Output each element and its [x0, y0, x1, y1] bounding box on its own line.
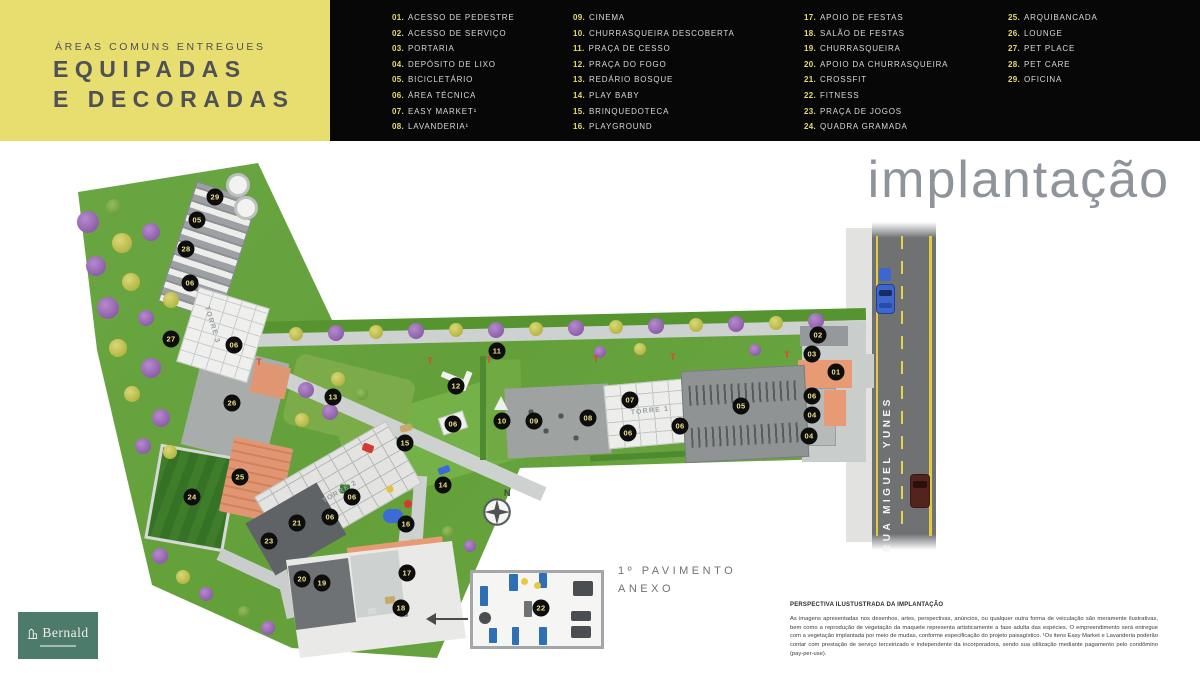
legend-item: 03.PORTARIA — [392, 44, 514, 53]
tree — [112, 233, 132, 253]
legend-item-number: 02. — [392, 29, 404, 38]
map-marker-19: 19 — [314, 575, 331, 592]
map-marker-14: 14 — [435, 477, 452, 494]
gym-equipment — [534, 582, 541, 589]
legend-item-label: OFICINA — [1024, 75, 1062, 84]
tree — [298, 382, 314, 398]
map-marker-03: 03 — [804, 346, 821, 363]
water-tank — [234, 196, 258, 220]
map-detail-item — [404, 500, 412, 508]
map-marker-04: 04 — [804, 407, 821, 424]
gym-equipment — [571, 611, 591, 621]
legend-item-label: PLAY BABY — [589, 91, 640, 100]
red-car — [910, 474, 930, 508]
map-marker-15: 15 — [397, 435, 414, 452]
legend-item: 04.DEPÓSITO DE LIXO — [392, 60, 514, 69]
vehicle-icon — [879, 268, 891, 281]
road-line — [876, 236, 878, 536]
north-label: N — [504, 488, 511, 498]
bernald-logo-tagline — [40, 645, 76, 647]
legend-item-label: CHURRASQUEIRA DESCOBERTA — [589, 29, 735, 38]
legend-item-number: 23. — [804, 107, 816, 116]
map-marker-04: 04 — [801, 428, 818, 445]
legend-item-label: ACESSO DE PEDESTRE — [408, 13, 514, 22]
tree — [199, 587, 213, 601]
header-highlight-box: ÁREAS COMUNS ENTREGUES EQUIPADAS E DECOR… — [0, 0, 330, 141]
header-kicker: ÁREAS COMUNS ENTREGUES — [55, 41, 266, 53]
map-marker-02: 02 — [810, 327, 827, 344]
legend-item-number: 07. — [392, 107, 404, 116]
legend-item-label: CROSSFIT — [820, 75, 867, 84]
entry-crossing — [864, 354, 874, 388]
legend-item-number: 14. — [573, 91, 585, 100]
map-marker-08: 08 — [580, 410, 597, 427]
map-marker-22: 22 — [533, 600, 550, 617]
tree — [689, 318, 703, 332]
legend-item: 01.ACESSO DE PEDESTRE — [392, 13, 514, 22]
disclaimer-body: As imagens apresentadas nos desenhos, ar… — [790, 615, 1158, 658]
tree — [322, 404, 338, 420]
map-marker-06: 06 — [445, 416, 462, 433]
gym-equipment — [512, 627, 519, 645]
legend-item: 13.REDÁRIO BOSQUE — [573, 75, 735, 84]
map-marker-25: 25 — [232, 469, 249, 486]
header-title-line1: EQUIPADAS — [53, 56, 247, 83]
legend-item-number: 24. — [804, 122, 816, 131]
tree — [749, 344, 761, 356]
tree — [141, 358, 161, 378]
tree — [408, 323, 424, 339]
tree — [109, 339, 127, 357]
legend-item: 22.FITNESS — [804, 91, 948, 100]
map-marker-06: 06 — [344, 489, 361, 506]
map-detail-item — [559, 414, 564, 419]
hydrant-mark: T — [427, 356, 433, 366]
legend-column: 25.ARQUIBANCADA26.LOUNGE27.PET PLACE28.P… — [1008, 13, 1098, 91]
bike-racks-row — [691, 422, 802, 448]
legend-item: 19.CHURRASQUEIRA — [804, 44, 948, 53]
legend-item-label: ACESSO DE SERVIÇO — [408, 29, 506, 38]
legend-item-label: CHURRASQUEIRA — [820, 44, 901, 53]
map-marker-24: 24 — [184, 489, 201, 506]
map-detail-item — [544, 429, 549, 434]
tree — [152, 548, 168, 564]
legend-item-number: 06. — [392, 91, 404, 100]
tree — [488, 322, 504, 338]
header-title-line2: E DECORADAS — [53, 86, 294, 113]
legend-item-label: SALÃO DE FESTAS — [820, 29, 905, 38]
legend-item: 17.APOIO DE FESTAS — [804, 13, 948, 22]
tree — [728, 316, 744, 332]
tree — [331, 372, 345, 386]
gym-equipment — [480, 586, 488, 606]
legend-item: 11.PRAÇA DE CESSO — [573, 44, 735, 53]
map-marker-09: 09 — [526, 413, 543, 430]
tree — [609, 320, 623, 334]
legend-item-number: 03. — [392, 44, 404, 53]
map-detail-item — [368, 608, 377, 615]
tree — [163, 445, 177, 459]
map-marker-05: 05 — [733, 398, 750, 415]
tree — [356, 388, 368, 400]
tree — [449, 323, 463, 337]
legend-item: 23.PRAÇA DE JOGOS — [804, 107, 948, 116]
map-marker-05: 05 — [189, 212, 206, 229]
hydrant-mark: T — [593, 354, 599, 364]
legend-item-label: PLAYGROUND — [589, 122, 652, 131]
garden-sculpture — [494, 396, 508, 410]
legend-item-number: 09. — [573, 13, 585, 22]
map-marker-20: 20 — [294, 571, 311, 588]
annex-label-line2: ANEXO — [618, 580, 736, 598]
legend-item: 08.LAVANDERIA¹ — [392, 122, 514, 131]
gym-equipment — [479, 612, 491, 624]
map-marker-01: 01 — [828, 364, 845, 381]
hydrant-mark: T — [784, 350, 790, 360]
tree — [295, 413, 309, 427]
legend-item: 05.BICICLETÁRIO — [392, 75, 514, 84]
map-marker-27: 27 — [163, 331, 180, 348]
legend-item-label: PET PLACE — [1024, 44, 1075, 53]
legend-item-label: LOUNGE — [1024, 29, 1063, 38]
legend: 01.ACESSO DE PEDESTRE02.ACESSO DE SERVIÇ… — [330, 0, 1200, 141]
map-marker-06: 06 — [322, 509, 339, 526]
tree — [261, 621, 275, 635]
legend-item-number: 20. — [804, 60, 816, 69]
blue-car — [876, 284, 895, 314]
legend-panel: 01.ACESSO DE PEDESTRE02.ACESSO DE SERVIÇ… — [330, 0, 1200, 141]
disclaimer-title: PERSPECTIVA ILUSTUSTRADA DA IMPLANTAÇÃO — [790, 602, 1158, 608]
map-marker-21: 21 — [289, 515, 306, 532]
legend-item: 02.ACESSO DE SERVIÇO — [392, 29, 514, 38]
legend-item: 18.SALÃO DE FESTAS — [804, 29, 948, 38]
annex-label-line1: 1º PAVIMENTO — [618, 562, 736, 580]
legend-item: 28.PET CARE — [1008, 60, 1098, 69]
map-marker-07: 07 — [622, 392, 639, 409]
map-marker-26: 26 — [224, 395, 241, 412]
tree — [769, 316, 783, 330]
legend-item-label: PRAÇA DO FOGO — [589, 60, 667, 69]
legend-item-number: 08. — [392, 122, 404, 131]
legend-item-label: BICICLETÁRIO — [408, 75, 473, 84]
tree — [152, 409, 170, 427]
legend-item: 09.CINEMA — [573, 13, 735, 22]
page: ÁREAS COMUNS ENTREGUES EQUIPADAS E DECOR… — [0, 0, 1200, 675]
legend-item-number: 25. — [1008, 13, 1020, 22]
legend-item-label: EASY MARKET¹ — [408, 107, 477, 116]
map-detail-item — [387, 486, 394, 493]
tree — [124, 386, 140, 402]
tree — [369, 325, 383, 339]
compass-rose — [480, 495, 514, 529]
legend-item-number: 15. — [573, 107, 585, 116]
tree — [529, 322, 543, 336]
legend-item-number: 18. — [804, 29, 816, 38]
gym-equipment — [521, 578, 528, 585]
map-marker-28: 28 — [178, 241, 195, 258]
legend-item-label: PRAÇA DE JOGOS — [820, 107, 902, 116]
legend-item: 20.APOIO DA CHURRASQUEIRA — [804, 60, 948, 69]
legend-column: 09.CINEMA10.CHURRASQUEIRA DESCOBERTA11.P… — [573, 13, 735, 138]
hydrant-mark: T — [670, 352, 676, 362]
legend-item-label: ÁREA TÉCNICA — [408, 91, 476, 100]
legend-item-label: PORTARIA — [408, 44, 455, 53]
legend-item-label: APOIO DE FESTAS — [820, 13, 903, 22]
tree — [442, 526, 454, 538]
map-marker-06: 06 — [182, 275, 199, 292]
bike-storage-building — [681, 365, 810, 463]
road-center-line — [901, 236, 903, 536]
street: RUA MIGUEL YUNES — [872, 222, 936, 550]
tree — [142, 223, 160, 241]
bernald-logo-icon — [27, 626, 38, 640]
legend-item-number: 12. — [573, 60, 585, 69]
tree — [289, 327, 303, 341]
map-marker-17: 17 — [399, 565, 416, 582]
legend-item-label: LAVANDERIA¹ — [408, 122, 469, 131]
tree — [106, 199, 122, 215]
tree — [122, 273, 140, 291]
legend-item-number: 27. — [1008, 44, 1020, 53]
legend-item-label: QUADRA GRAMADA — [820, 122, 908, 131]
tree — [163, 292, 179, 308]
street-name-label: RUA MIGUEL YUNES — [882, 302, 893, 552]
legend-item: 27.PET PLACE — [1008, 44, 1098, 53]
legend-item: 24.QUADRA GRAMADA — [804, 122, 948, 131]
annex-label: 1º PAVIMENTO ANEXO — [618, 562, 736, 598]
legend-item-label: ARQUIBANCADA — [1024, 13, 1098, 22]
tree — [77, 211, 99, 233]
disclaimer: PERSPECTIVA ILUSTUSTRADA DA IMPLANTAÇÃO … — [790, 602, 1158, 658]
legend-item: 06.ÁREA TÉCNICA — [392, 91, 514, 100]
map-marker-23: 23 — [261, 533, 278, 550]
legend-item: 07.EASY MARKET¹ — [392, 107, 514, 116]
map-marker-06: 06 — [804, 388, 821, 405]
legend-item-number: 19. — [804, 44, 816, 53]
map-marker-18: 18 — [393, 600, 410, 617]
tree — [634, 343, 646, 355]
legend-item: 21.CROSSFIT — [804, 75, 948, 84]
map-detail-item — [574, 436, 579, 441]
legend-item-label: REDÁRIO BOSQUE — [589, 75, 673, 84]
legend-item-label: CINEMA — [589, 13, 625, 22]
hydrant-mark: T — [256, 357, 262, 367]
legend-column: 01.ACESSO DE PEDESTRE02.ACESSO DE SERVIÇ… — [392, 13, 514, 138]
bernald-logo: Bernald — [18, 612, 98, 659]
gym-equipment — [489, 628, 497, 643]
legend-column: 17.APOIO DE FESTAS18.SALÃO DE FESTAS19.C… — [804, 13, 948, 138]
gym-equipment — [524, 601, 532, 617]
map-marker-13: 13 — [325, 389, 342, 406]
legend-item-label: DEPÓSITO DE LIXO — [408, 60, 496, 69]
legend-item-number: 28. — [1008, 60, 1020, 69]
legend-item-label: PRAÇA DE CESSO — [589, 44, 671, 53]
legend-item: 10.CHURRASQUEIRA DESCOBERTA — [573, 29, 735, 38]
map-marker-10: 10 — [494, 413, 511, 430]
tree — [138, 310, 154, 326]
tree — [568, 320, 584, 336]
tree — [97, 297, 119, 319]
legend-item: 15.BRINQUEDOTECA — [573, 107, 735, 116]
legend-item: 14.PLAY BABY — [573, 91, 735, 100]
water-tank — [226, 173, 250, 197]
map-marker-16: 16 — [398, 516, 415, 533]
legend-item-number: 16. — [573, 122, 585, 131]
legend-item-number: 01. — [392, 13, 404, 22]
tree — [328, 325, 344, 341]
legend-item-number: 05. — [392, 75, 404, 84]
legend-item-number: 17. — [804, 13, 816, 22]
legend-item-number: 04. — [392, 60, 404, 69]
legend-item-label: PET CARE — [1024, 60, 1070, 69]
tree — [86, 256, 106, 276]
legend-item-label: BRINQUEDOTECA — [589, 107, 669, 116]
legend-item-number: 11. — [573, 44, 585, 53]
gym-equipment — [573, 581, 593, 596]
map-marker-06: 06 — [672, 418, 689, 435]
legend-item-number: 26. — [1008, 29, 1020, 38]
arrow-head-icon — [426, 613, 436, 625]
legend-item-number: 29. — [1008, 75, 1020, 84]
arrow-line — [436, 618, 468, 620]
tree — [135, 438, 151, 454]
legend-item-label: FITNESS — [820, 91, 859, 100]
legend-item-number: 10. — [573, 29, 585, 38]
legend-item-label: APOIO DA CHURRASQUEIRA — [820, 60, 948, 69]
map-marker-11: 11 — [489, 343, 506, 360]
annex-arrow — [426, 610, 470, 628]
gym-equipment — [539, 627, 547, 645]
legend-item: 12.PRAÇA DO FOGO — [573, 60, 735, 69]
paved-entry — [824, 390, 846, 426]
tree — [176, 570, 190, 584]
legend-item: 29.OFICINA — [1008, 75, 1098, 84]
legend-item: 26.LOUNGE — [1008, 29, 1098, 38]
gym-equipment — [571, 626, 591, 638]
legend-item: 16.PLAYGROUND — [573, 122, 735, 131]
map-marker-29: 29 — [207, 189, 224, 206]
tree — [464, 540, 476, 552]
map-marker-06: 06 — [620, 425, 637, 442]
legend-item-number: 21. — [804, 75, 816, 84]
tree — [648, 318, 664, 334]
map-marker-06: 06 — [226, 337, 243, 354]
hedge — [480, 356, 486, 460]
legend-item: 25.ARQUIBANCADA — [1008, 13, 1098, 22]
bernald-logo-text: Bernald — [42, 625, 88, 641]
tree — [238, 606, 250, 618]
legend-item-number: 13. — [573, 75, 585, 84]
legend-item-number: 22. — [804, 91, 816, 100]
gym-equipment — [509, 574, 518, 591]
map-marker-12: 12 — [448, 378, 465, 395]
